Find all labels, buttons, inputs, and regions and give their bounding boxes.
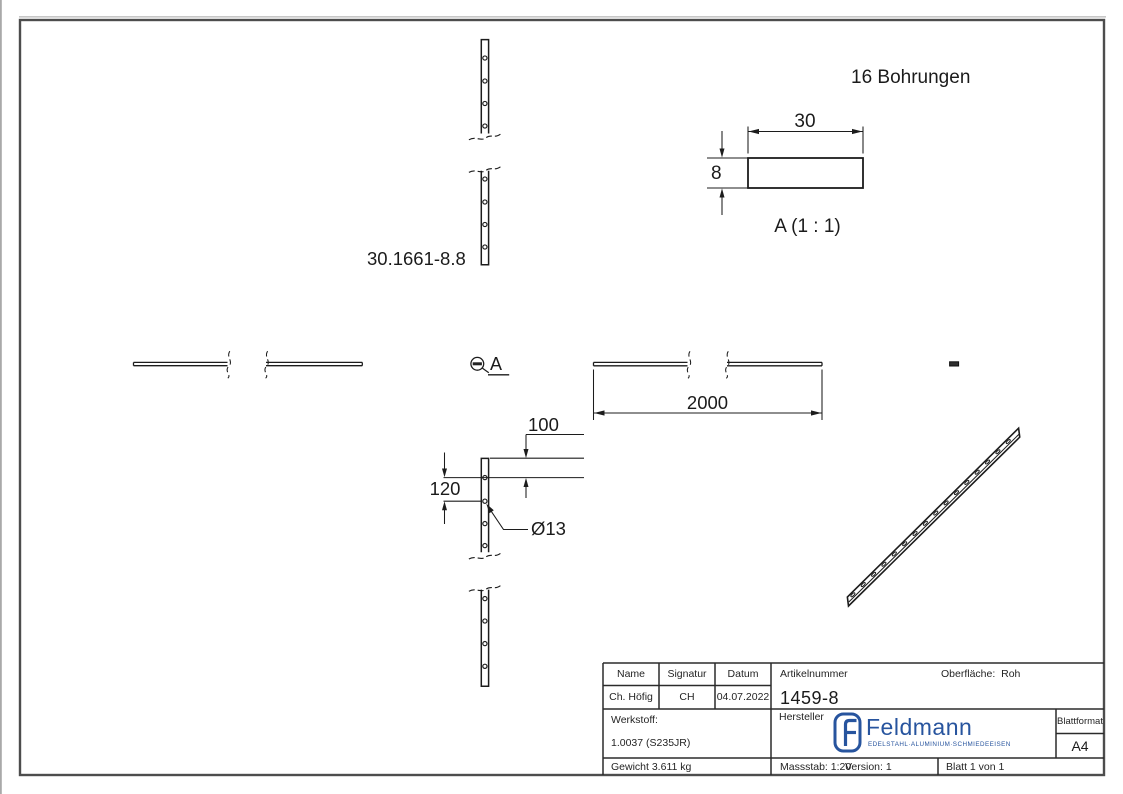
drawing-frame-border xyxy=(20,20,1104,775)
titleblock-version: Version: 1 xyxy=(845,758,892,775)
break-line xyxy=(726,351,729,378)
titleblock-header-datum: Datum xyxy=(715,663,771,685)
titleblock-header-signatur: Signatur xyxy=(659,663,715,685)
view-vertical-bar-upper xyxy=(469,40,501,265)
titleblock-label-hersteller: Hersteller xyxy=(779,712,824,723)
drawing-sheet: 30.1661-8.8 16 Bohrungen 30 8 A (1 : 1) … xyxy=(0,0,1123,794)
holes-count-note: 16 Bohrungen xyxy=(851,68,970,87)
dim-label-width-30: 30 xyxy=(780,112,830,131)
detail-callout-letter: A xyxy=(490,355,502,373)
page-left-edge xyxy=(0,0,2,794)
titleblock-value-blattformat: A4 xyxy=(1056,733,1104,758)
end-view-right xyxy=(950,362,959,366)
view-horizontal-bar-left xyxy=(134,351,363,378)
feldmann-logo-wordmark: Feldmann xyxy=(866,716,972,739)
titleblock-label-blattformat: Blattformat xyxy=(1056,709,1104,733)
dimension-100 xyxy=(444,435,585,499)
view-isometric xyxy=(843,428,1023,606)
titleblock-gewicht: Gewicht 3.611 kg xyxy=(611,758,691,775)
view-vertical-bar-lower xyxy=(442,435,584,687)
titleblock-value-name: Ch. Höfig xyxy=(603,685,659,709)
part-number-label: 30.1661-8.8 xyxy=(367,250,466,269)
titleblock-label-werkstoff: Werkstoff: xyxy=(611,715,658,726)
oberflaeche-value: Roh xyxy=(1001,668,1020,680)
titleblock-value-datum: 04.07.2022 xyxy=(715,685,771,709)
oberflaeche-label: Oberfläche: xyxy=(941,668,995,680)
break-line xyxy=(469,585,501,591)
break-line xyxy=(227,351,230,378)
dim-label-end-distance-100: 100 xyxy=(528,416,559,435)
titleblock-massstab: Massstab: 1:20 xyxy=(780,758,851,775)
titleblock-value-artikelnummer: 1459-8 xyxy=(780,689,839,707)
dim-label-length-2000: 2000 xyxy=(680,394,735,413)
titleblock-label-artikelnummer: Artikelnummer xyxy=(780,669,848,680)
titleblock-header-name: Name xyxy=(603,663,659,685)
titleblock-value-signatur: CH xyxy=(659,685,715,709)
break-line xyxy=(687,351,690,378)
detail-view-title: A (1 : 1) xyxy=(770,217,845,236)
dim-label-thickness-8: 8 xyxy=(711,164,722,183)
break-line xyxy=(265,351,268,378)
titleblock-value-werkstoff: 1.0037 (S235JR) xyxy=(611,738,690,749)
break-line xyxy=(469,134,501,140)
break-line xyxy=(469,166,501,172)
view-detail-a xyxy=(707,127,863,216)
feldmann-logo-tagline: EDELSTAHL·ALUMINIUM·SCHMIEDEEISEN xyxy=(868,742,1011,748)
break-line xyxy=(469,553,501,559)
dim-label-hole-diameter: Ø13 xyxy=(531,520,566,539)
titleblock-blatt: Blatt 1 von 1 xyxy=(946,758,1004,775)
end-view-small xyxy=(473,362,482,365)
dim-label-hole-pitch-120: 120 xyxy=(426,480,464,499)
feldmann-logo-icon xyxy=(835,714,860,751)
leader-hole-diameter xyxy=(486,504,528,530)
titleblock-label-oberflaeche: Oberfläche: Roh xyxy=(941,669,1020,680)
